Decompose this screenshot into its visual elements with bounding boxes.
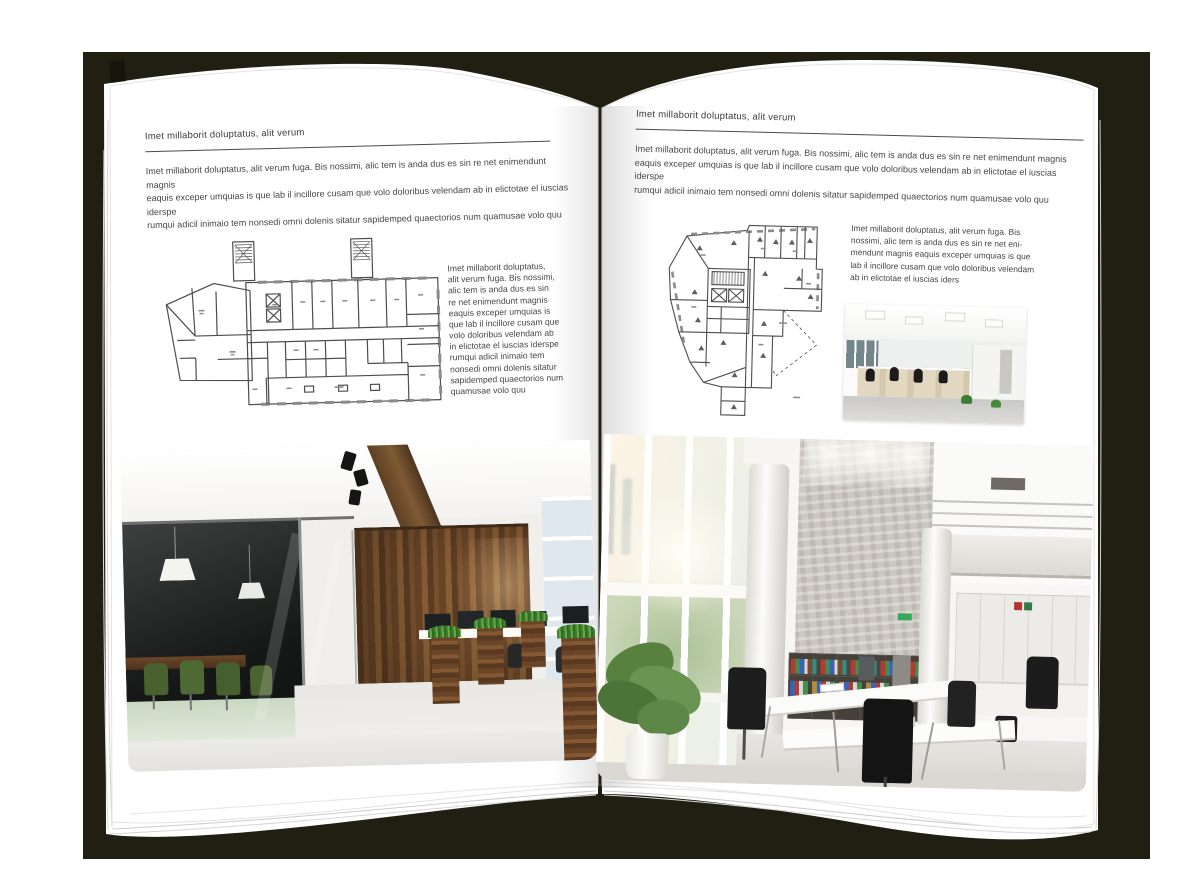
left-intro-paragraph: Imet millaborit doluptatus, alit verum f… [146, 154, 578, 233]
sun-glare [614, 486, 747, 619]
planter-grass [474, 617, 506, 629]
office-chair [914, 369, 923, 383]
planter-box [561, 636, 598, 761]
chair-stem [153, 695, 155, 709]
small-plant [961, 395, 972, 404]
office-chair [727, 667, 767, 730]
balcony-fascia [931, 534, 1094, 576]
safety-sign-green [1024, 602, 1032, 610]
chair-stem [190, 694, 192, 710]
chair-stem [226, 695, 228, 710]
wall-spotlights [803, 439, 930, 488]
small-plant [991, 399, 1001, 407]
door [999, 350, 1012, 394]
green-chair [144, 663, 169, 696]
monitor [562, 606, 588, 624]
light-panel [985, 319, 1003, 327]
planter-box [477, 626, 505, 685]
right-header-rule [636, 129, 1084, 141]
right-page: Imet millaborit doluptatus, alit verum I… [602, 94, 1099, 796]
right-office-photo [596, 434, 1094, 792]
planter-box [431, 635, 460, 704]
office-chair [939, 370, 948, 383]
light-panel [945, 312, 965, 321]
exit-sign [898, 613, 912, 620]
plant-pot [626, 733, 669, 780]
left-page-header: Imet millaborit doluptatus, alit verum [145, 127, 305, 142]
ceiling-spotlight [348, 489, 361, 505]
right-small-photo [843, 304, 1027, 424]
planter-grass [517, 611, 547, 622]
green-chair [180, 660, 205, 695]
left-header-rule [145, 141, 550, 153]
left-page: Imet millaborit doluptatus, alit verum I… [119, 102, 582, 783]
chair-stem [884, 777, 887, 787]
brochure-mockup: Imet millaborit doluptatus, alit verum I… [0, 0, 1200, 891]
floor-plan-right [653, 215, 852, 422]
office-chair [1026, 656, 1059, 709]
floor-plan-left [153, 233, 450, 423]
left-office-photo [120, 440, 598, 772]
office-chair [866, 368, 875, 381]
office-chair [862, 698, 914, 783]
planter-grass [557, 624, 595, 639]
light-panel [905, 316, 923, 324]
back-windows [844, 340, 879, 369]
right-side-paragraph: Imet millaborit doluptatus, alit verum f… [850, 222, 1051, 288]
left-side-paragraph: Imet millaborit doluptatus, alit verum f… [447, 260, 576, 397]
planter-box [521, 619, 546, 668]
safety-sign-red [1014, 602, 1022, 610]
light-panel [865, 310, 885, 319]
green-chair [216, 662, 241, 696]
monitor [858, 656, 875, 680]
right-intro-paragraph: Imet millaborit doluptatus, alit verum f… [634, 143, 1085, 208]
office-chair [947, 680, 976, 727]
vent-grille [991, 477, 1025, 490]
right-page-header: Imet millaborit doluptatus, alit verum [636, 109, 796, 124]
office-chair [890, 367, 899, 381]
partition-wall [971, 345, 1026, 402]
planter-grass [428, 625, 461, 638]
